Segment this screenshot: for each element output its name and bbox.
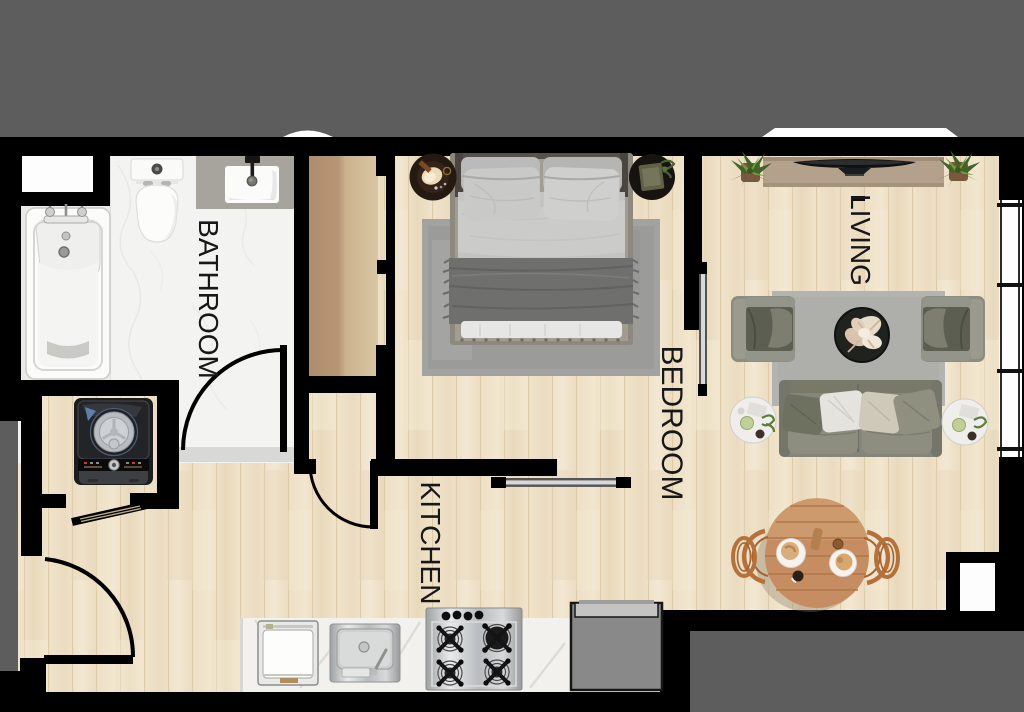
svg-text:BATHROOM: BATHROOM bbox=[193, 219, 224, 379]
svg-text:KITCHEN: KITCHEN bbox=[415, 482, 446, 605]
svg-text:LIVING: LIVING bbox=[845, 194, 876, 286]
svg-text:BEDROOM: BEDROOM bbox=[655, 345, 688, 500]
